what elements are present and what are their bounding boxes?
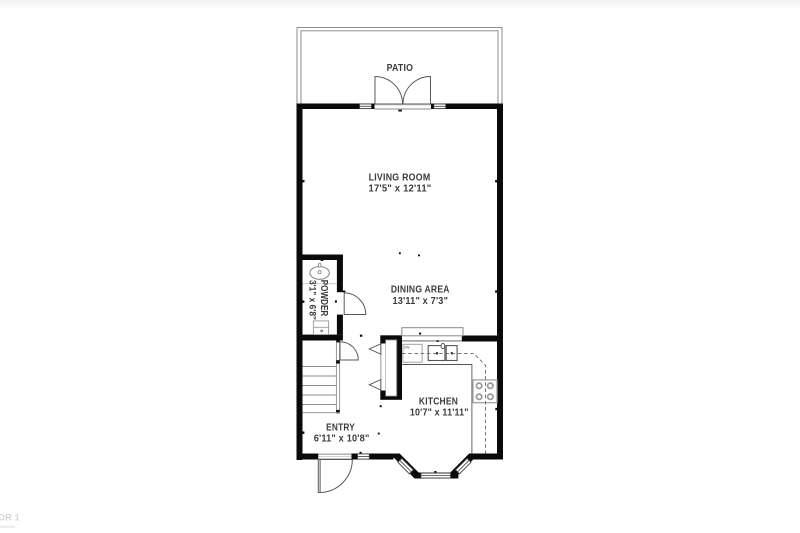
svg-text:10'7" x 11'11": 10'7" x 11'11" xyxy=(410,407,469,419)
svg-text:17'5" x 12'11": 17'5" x 12'11" xyxy=(369,183,432,195)
svg-text:DINING AREA: DINING AREA xyxy=(391,284,450,296)
svg-text:OR 1: OR 1 xyxy=(0,513,20,523)
svg-text:6'11" x 10'8": 6'11" x 10'8" xyxy=(314,433,370,445)
svg-text:13'11" x 7'3": 13'11" x 7'3" xyxy=(393,295,449,307)
svg-text:POWDER: POWDER xyxy=(318,280,329,317)
svg-text:PATIO: PATIO xyxy=(387,62,414,74)
svg-text:DW: DW xyxy=(404,345,411,349)
svg-text:3'1" x 6'8": 3'1" x 6'8" xyxy=(306,280,317,320)
